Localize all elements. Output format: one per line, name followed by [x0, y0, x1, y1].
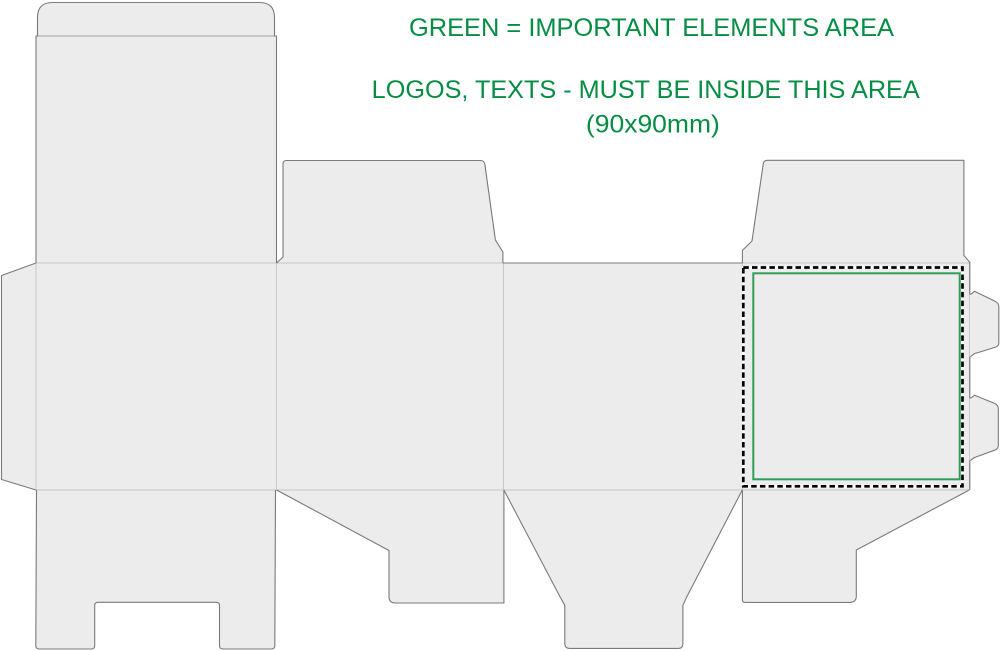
- svg-text:LOGOS, TEXTS - MUST BE INSIDE: LOGOS, TEXTS - MUST BE INSIDE THIS AREA: [372, 76, 920, 104]
- svg-text:(90x90mm): (90x90mm): [586, 111, 720, 139]
- svg-text:GREEN = IMPORTANT ELEMENTS ARE: GREEN = IMPORTANT ELEMENTS AREA: [409, 14, 894, 42]
